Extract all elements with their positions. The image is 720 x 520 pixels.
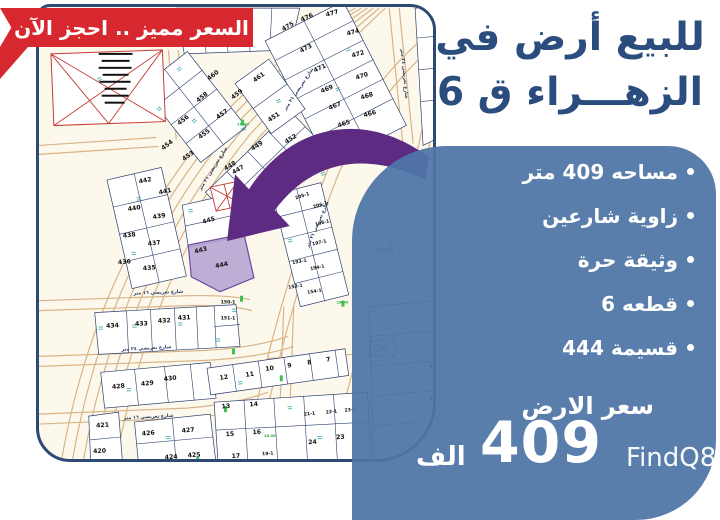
map-label: 420 [93,448,106,456]
map-label: 426 [142,429,155,437]
map-label: 428 [112,383,126,391]
promo-ribbon: السعر مميز .. احجز الآن [0,8,253,47]
map-label: 432 [158,317,171,325]
map-label: 16.00 [237,122,249,127]
map-label: 151-1 [221,316,236,322]
map-label: 427 [181,426,194,434]
map-label: 435 [143,264,156,272]
map-label: 441 [158,187,172,196]
map-label: 16 [252,429,261,437]
ad-headline: للبيع أرض في الزهـــراء ق 6 [426,10,714,120]
red-outlined-plot [51,50,165,126]
map-label: 16.00 [264,433,276,438]
map-label: 10 [265,365,274,373]
map-label: 431 [178,314,191,322]
price-value: 409 [480,410,602,476]
price-unit: الف [416,442,466,472]
map-label: 23 [336,434,345,442]
map-label: 18.00 [337,300,349,305]
map-label: 15 [225,431,234,439]
map-label: 433 [135,320,148,328]
feature-item: قطعه 6 [382,292,694,316]
map-label: 460 [206,69,220,82]
map-label: 421 [96,422,109,430]
feature-list: مساحه 409 مترزاوية شارعينوثيقة حرةقطعه 6… [382,160,694,380]
map-label: 430 [163,375,177,383]
map-label: 19-1 [262,451,274,458]
map-label: 14 [249,401,258,409]
map-label: 424 [165,453,178,461]
feature-item: زاوية شارعين [382,204,694,228]
map-label: 436 [118,258,131,266]
map-label: 21-1 [304,411,316,418]
feature-item: قسيمة 444 [382,336,694,360]
ribbon-fold [0,47,28,79]
map-label: شارع تعريضي ٢٤ متر [399,48,409,100]
map-label: 22-1 [325,409,337,416]
headline-line2: الزهـــراء ق 6 [426,66,714,120]
feature-item: وثيقة حرة [382,248,694,272]
map-label: 17 [231,453,240,460]
promo-ribbon-text: السعر مميز .. احجز الآن [4,16,249,40]
feature-item: مساحه 409 متر [382,160,694,184]
map-label: 150-1 [221,300,236,306]
map-label: 434 [106,322,119,330]
map-label: 13 [221,403,230,411]
map-label: 24 [308,439,317,447]
map-label: 425 [187,451,200,459]
map-label: شارع تعريضي ١٦ متر [132,289,183,297]
map-label: 12 [219,374,228,382]
headline-line1: للبيع أرض في [426,10,714,66]
map-label: 429 [141,380,155,388]
map-label: 454 [160,139,174,152]
map-label: 11 [245,371,254,379]
watermark-logo: FindQ8 [626,443,716,473]
